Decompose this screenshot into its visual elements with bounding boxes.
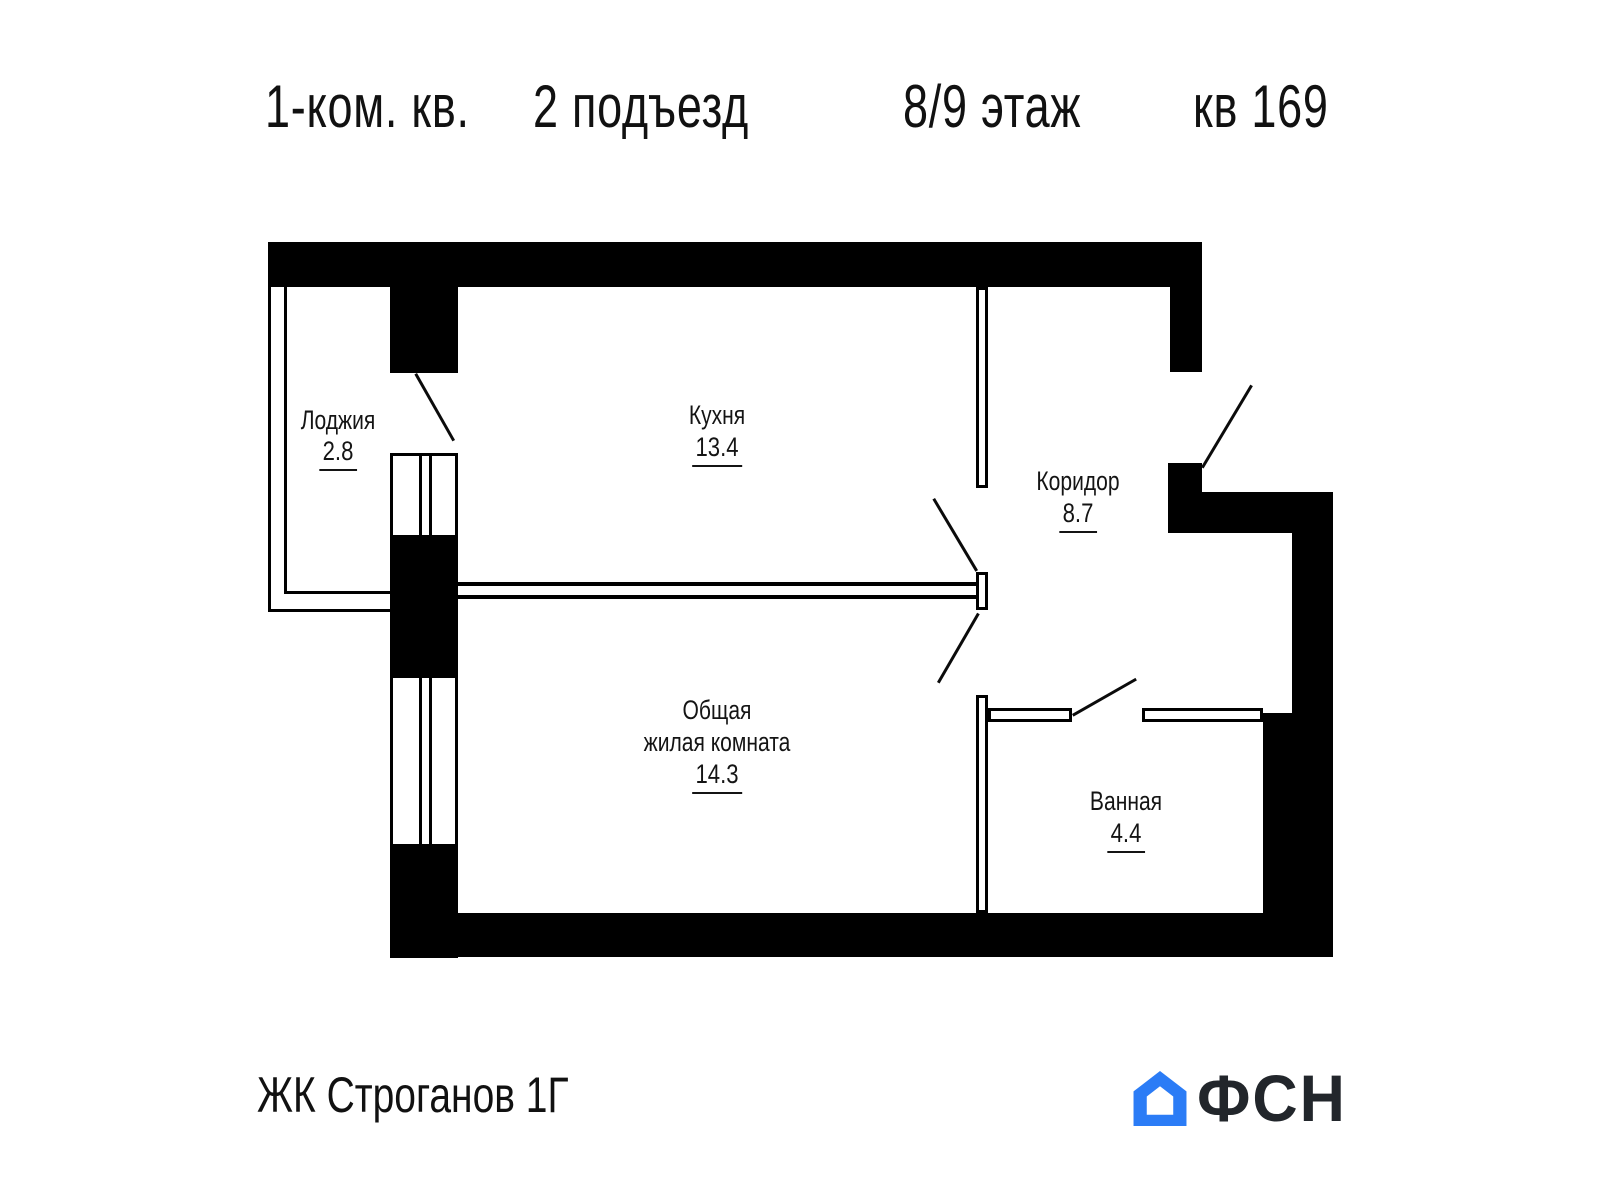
window-living [390, 675, 458, 847]
complex-name: ЖК Строганов 1Г [257, 1066, 569, 1124]
loggia-wall-inner-vertical [284, 287, 287, 594]
wall-corridor-topright [1202, 492, 1333, 533]
window-mullion [419, 678, 422, 844]
room-area-kitchen: 13.4 [692, 432, 742, 467]
room-label-loggia: Лоджия [301, 405, 376, 436]
door-swing-entrance [1201, 385, 1253, 469]
wall-entrance-column [1170, 287, 1202, 372]
company-logo: ФСН [1133, 1070, 1355, 1126]
wall-entrance-block [1168, 463, 1202, 533]
loggia-wall-inner-bottom [284, 591, 390, 594]
door-swing-balcony [414, 373, 455, 441]
header-apt-number: кв 169 [1193, 72, 1329, 141]
partition-kitchen-living [458, 582, 977, 599]
floorplan-canvas: 1-ком. кв. 2 подъезд 8/9 этаж кв 169 Лод… [0, 0, 1600, 1200]
wall-pier-middle [390, 538, 458, 675]
window-mullion [429, 678, 432, 844]
wall-pier-upper [390, 287, 458, 373]
header-floor: 8/9 этаж [903, 72, 1081, 141]
header-entrance: 2 подъезд [533, 72, 749, 141]
loggia-wall-outer-bottom [268, 609, 390, 612]
room-label-kitchen: Кухня [689, 400, 745, 431]
house-icon [1133, 1070, 1187, 1126]
bathroom-wall-left [988, 708, 1072, 722]
partition-end-cap [976, 572, 988, 610]
door-swing-kitchen [932, 498, 978, 572]
wall-bathroom-right [1263, 713, 1292, 913]
wall-pier-lower [390, 847, 458, 958]
room-area-living: 14.3 [692, 759, 742, 794]
wall-top [268, 242, 1202, 287]
partition-kitchen-corridor [976, 287, 988, 488]
room-label-corridor: Коридор [1036, 466, 1119, 497]
door-swing-bathroom [1072, 678, 1137, 717]
loggia-wall-outer-vertical [268, 287, 271, 611]
room-label-living-line1: Общая [683, 695, 752, 726]
window-mullion [429, 456, 432, 535]
partition-living-bathroom [976, 695, 988, 913]
room-area-corridor: 8.7 [1059, 498, 1096, 533]
header-unit-type: 1-ком. кв. [265, 72, 470, 141]
logo-text: ФСН [1197, 1071, 1347, 1126]
wall-right [1292, 533, 1333, 957]
room-label-bathroom: Ванная [1090, 786, 1162, 817]
room-area-bathroom: 4.4 [1107, 818, 1144, 853]
window-mullion [419, 456, 422, 535]
window-kitchen [390, 453, 458, 538]
room-label-living-line2: жилая комната [644, 727, 791, 758]
room-area-loggia: 2.8 [319, 436, 356, 471]
door-swing-living [937, 613, 980, 684]
bathroom-wall-right [1142, 708, 1263, 722]
wall-bottom [390, 913, 1333, 957]
